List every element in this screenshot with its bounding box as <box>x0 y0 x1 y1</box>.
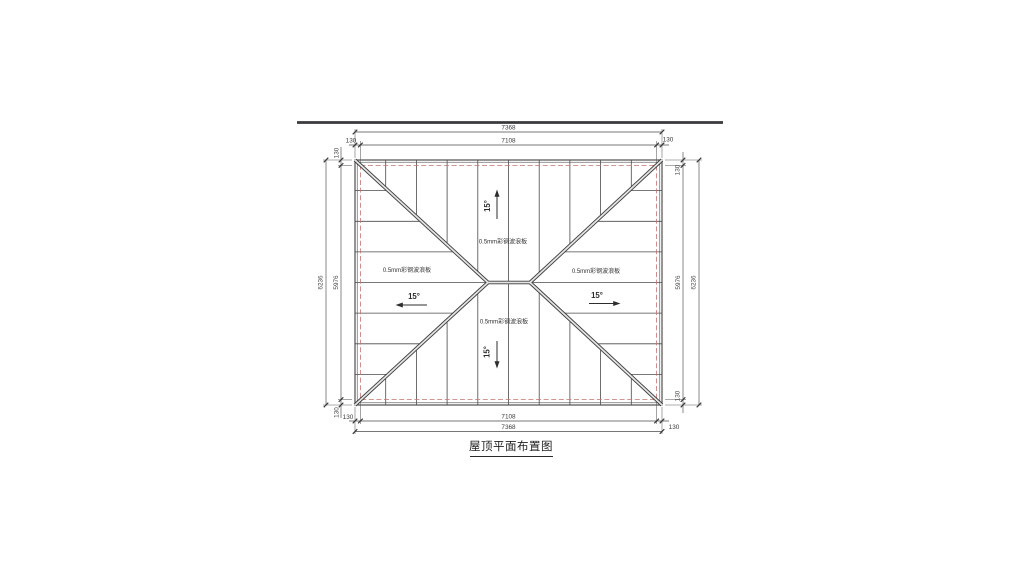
dim-bottom-overhang-right: 130 <box>669 424 680 431</box>
slope-arrow-down-head <box>495 361 500 368</box>
dim-right-overall: 6236 <box>691 275 698 290</box>
drawing-title: 屋顶平面布置图 <box>469 440 553 453</box>
dim-bottom-inner: 7108 <box>501 414 516 421</box>
slope-label-bottom: 15° <box>483 346 492 358</box>
dim-left-overhang-bottom: 130 <box>334 407 341 418</box>
dimensions-right: 5976 130 130 6236 <box>665 152 702 413</box>
dim-right-overhang-bottom: 130 <box>675 390 682 401</box>
dim-right-inner: 5976 <box>675 275 682 290</box>
roof-plan-page: 15° 15° 15° 15° 0.5mm彩钢波浪板 0.5mm彩钢波浪板 0.… <box>0 0 1024 583</box>
slope-label-left: 15° <box>408 292 420 301</box>
dim-top-overhang-right: 130 <box>663 137 674 144</box>
slope-label-top: 15° <box>483 200 492 212</box>
panel-label-left-face: 0.5mm彩钢波浪板 <box>383 266 431 274</box>
roof-plan-drawing: 15° 15° 15° 15° 0.5mm彩钢波浪板 0.5mm彩钢波浪板 0.… <box>0 0 1024 583</box>
dim-top-overhang-left: 130 <box>346 138 357 145</box>
drawing-title-block: 屋顶平面布置图 <box>469 440 553 457</box>
slope-annotations: 15° 15° 15° 15° <box>396 190 621 369</box>
dimensions-top: 7368 7108 130 130 <box>346 125 674 164</box>
dim-left-overhang-top: 130 <box>334 147 341 158</box>
roof-body <box>353 158 664 407</box>
panel-label-bottom-face: 0.5mm彩钢波浪板 <box>480 318 528 326</box>
dimensions-bottom: 7108 130 130 7368 <box>343 402 680 434</box>
dim-left-overall: 6236 <box>318 275 325 290</box>
dim-top-overall: 7368 <box>501 125 516 132</box>
panel-label-right-face: 0.5mm彩钢波浪板 <box>572 267 620 275</box>
slope-arrow-right-head <box>613 301 620 306</box>
dim-top-inner: 7108 <box>501 138 516 145</box>
dim-bottom-overhang-left: 130 <box>343 414 354 421</box>
slope-arrow-left-head <box>396 303 403 308</box>
dimensions-left: 6236 5976 130 130 <box>318 147 353 418</box>
dim-right-overhang-top: 130 <box>675 164 682 175</box>
slope-arrow-up-head <box>495 190 500 197</box>
slope-label-right: 15° <box>591 291 603 300</box>
panel-label-top-face: 0.5mm彩钢波浪板 <box>479 238 527 246</box>
dim-bottom-overall: 7368 <box>501 424 516 431</box>
dim-left-inner: 5976 <box>333 275 340 290</box>
